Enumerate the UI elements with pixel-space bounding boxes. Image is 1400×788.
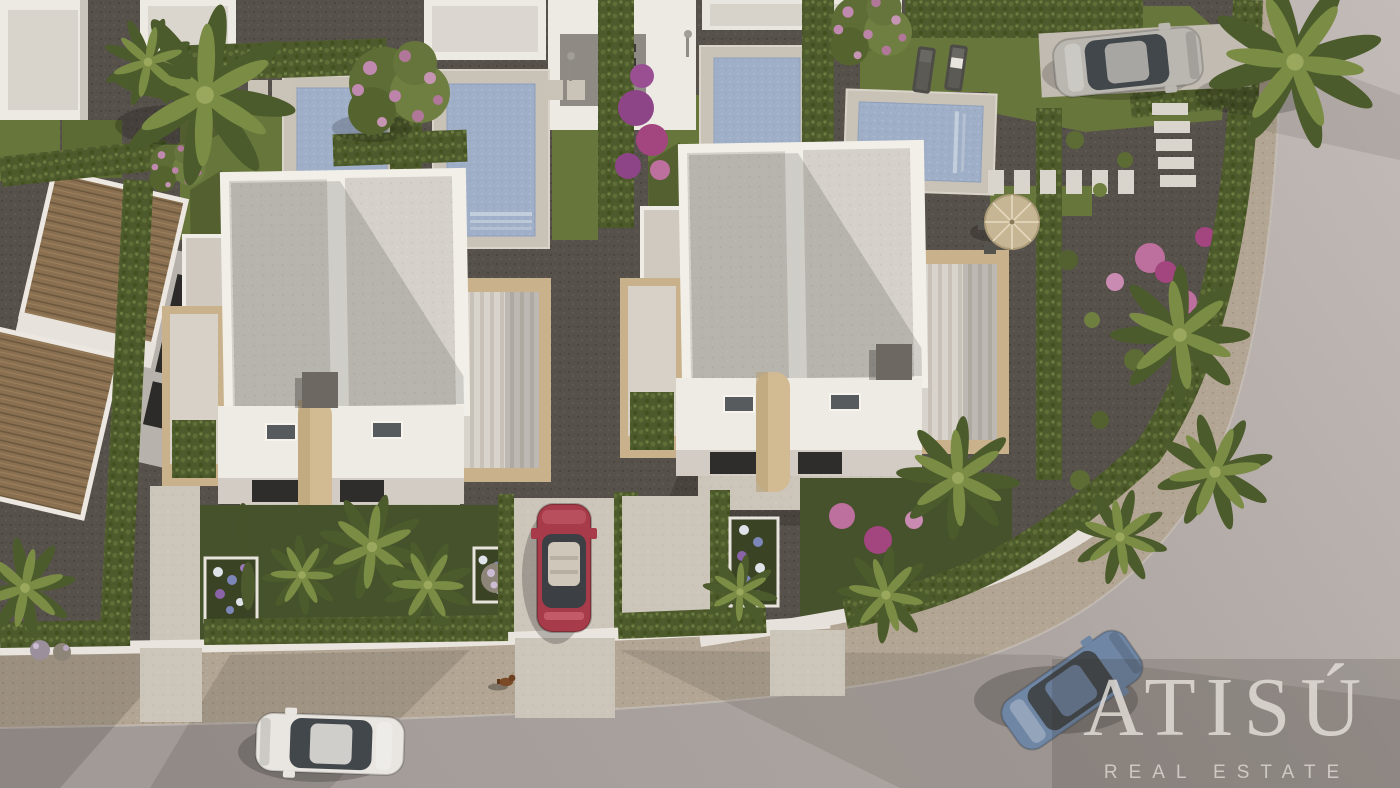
watermark-brand: ATISÚ	[1054, 666, 1400, 750]
rooflight-box	[302, 372, 338, 408]
watermark-tagline: REAL ESTATE	[1054, 762, 1400, 784]
white-car	[238, 706, 405, 782]
aerial-render: ATISÚ REAL ESTATE	[0, 0, 1400, 788]
rooflight-box	[876, 344, 912, 380]
